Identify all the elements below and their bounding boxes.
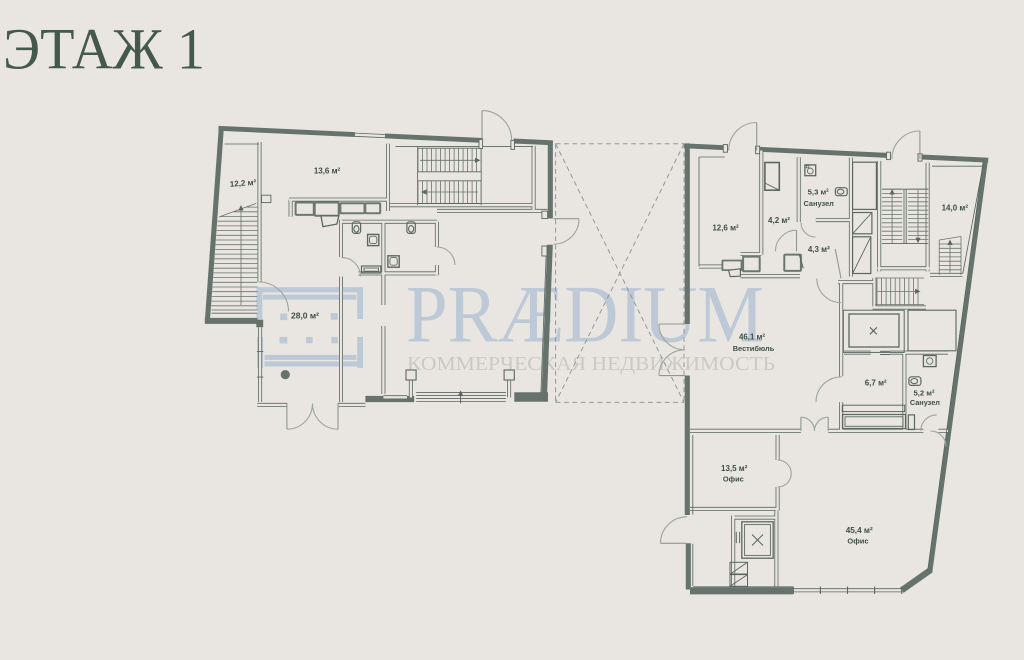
- svg-text:13,5 м²: 13,5 м²: [721, 464, 748, 473]
- svg-text:4,2 м²: 4,2 м²: [768, 216, 790, 225]
- svg-text:12,6 м²: 12,6 м²: [712, 223, 739, 232]
- svg-text:PRÆDIUM: PRÆDIUM: [406, 269, 764, 360]
- svg-text:КОММЕРЧЕСКАЯ НЕДВИЖИМОСТЬ: КОММЕРЧЕСКАЯ НЕДВИЖИМОСТЬ: [407, 353, 775, 375]
- svg-text:Офис: Офис: [723, 474, 744, 483]
- svg-text:14,0 м²: 14,0 м²: [942, 203, 969, 212]
- svg-text:5,2 м²: 5,2 м²: [913, 388, 935, 397]
- svg-text:Санузел: Санузел: [803, 199, 834, 208]
- svg-text:ЭТАЖ 1: ЭТАЖ 1: [3, 17, 205, 82]
- svg-text:12,2 м²: 12,2 м²: [230, 178, 257, 189]
- svg-text:6,7 м²: 6,7 м²: [865, 378, 887, 387]
- svg-text:13,6 м²: 13,6 м²: [314, 166, 341, 175]
- svg-text:45,4 м²: 45,4 м²: [846, 526, 873, 535]
- svg-text:Офис: Офис: [847, 536, 868, 545]
- svg-text:28,0 м²: 28,0 м²: [291, 311, 319, 321]
- svg-text:4,3 м²: 4,3 м²: [808, 245, 830, 254]
- svg-text:Санузел: Санузел: [910, 398, 940, 407]
- svg-text:Вестибюль: Вестибюль: [733, 344, 775, 353]
- svg-text:46,1 м²: 46,1 м²: [739, 332, 765, 341]
- svg-text:5,3 м²: 5,3 м²: [808, 187, 830, 196]
